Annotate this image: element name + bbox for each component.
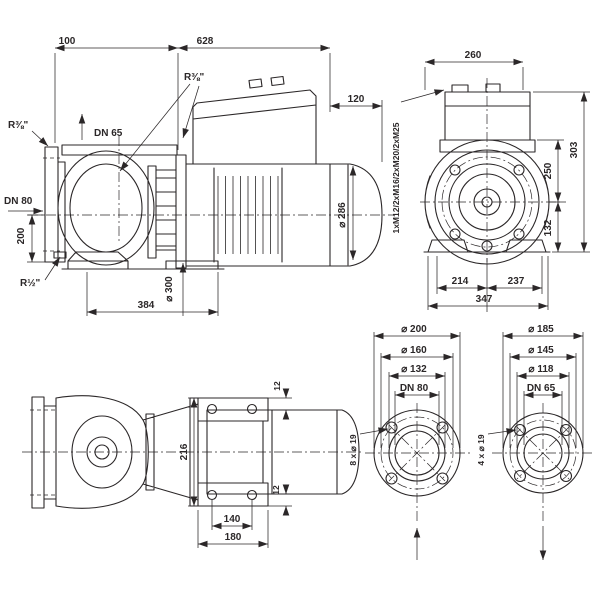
dim-text-dn65-boltcircle: ⌀ 145 xyxy=(528,345,554,356)
suction-label: DN 80 xyxy=(4,196,33,207)
dim-text-250: 250 xyxy=(543,162,554,179)
plan-view: 216 140 180 12 12 xyxy=(22,381,362,548)
dim-text-140: 140 xyxy=(224,514,241,525)
dim-text-dn80-outer: ⌀ 200 xyxy=(401,324,427,335)
leader-dn65-boltholes xyxy=(488,430,516,434)
dim-text-lantern-diameter: ⌀ 300 xyxy=(164,276,175,302)
dim-text-180: 180 xyxy=(225,532,242,543)
leader-gauge-suction xyxy=(32,131,48,146)
dim-text-303: 303 xyxy=(569,141,580,158)
discharge-label: DN 65 xyxy=(94,128,123,139)
leader-drain-port xyxy=(45,257,60,280)
front-view: 260 303 250 132 214 237 347 1xM12/2xM16/… xyxy=(391,50,590,312)
port-label-gauge-suction: R⅜" xyxy=(8,120,29,131)
cable-glands-label: 1xM12/2xM16/2xM20/2xM25 xyxy=(391,122,401,233)
dim-text-dn80-face: ⌀ 132 xyxy=(401,364,427,375)
leader-gauge-port-a xyxy=(120,84,190,171)
dim-text-214: 214 xyxy=(452,276,469,287)
dim-text-237: 237 xyxy=(508,276,525,287)
leader-cable-glands xyxy=(401,90,444,102)
dim-text-260: 260 xyxy=(465,50,482,61)
dim-text-200: 200 xyxy=(16,227,27,244)
dim-text-120: 120 xyxy=(348,94,365,105)
dim-text-628: 628 xyxy=(197,36,214,47)
dim-text-dn65-face: ⌀ 118 xyxy=(529,364,554,375)
dim-text-12-bottom: 12 xyxy=(271,485,281,495)
port-label-drain: R½" xyxy=(20,278,41,289)
dn80-boltholes-label: 8 x ⌀ 19 xyxy=(348,434,358,465)
pump-dimension-drawing: 100 628 120 ⌀ 286 200 384 ⌀ 300 R⅜" R⅜" … xyxy=(0,0,600,600)
technical-drawing-canvas: 100 628 120 ⌀ 286 200 384 ⌀ 300 R⅜" R⅜" … xyxy=(0,0,600,600)
leader-gauge-port-b xyxy=(183,86,199,138)
port-label-gauge: R⅜" xyxy=(184,72,205,83)
side-view: 100 628 120 ⌀ 286 200 384 ⌀ 300 R⅜" R⅜" … xyxy=(4,36,395,316)
dim-text-12-top: 12 xyxy=(272,381,282,391)
side-extension-lines xyxy=(27,53,382,316)
dim-text-motor-diameter: ⌀ 286 xyxy=(337,202,348,228)
dn65-boltholes-label: 4 x ⌀ 19 xyxy=(476,434,486,465)
pump-and-motor-outline xyxy=(45,77,382,270)
flange-dn65-view: ⌀ 185 ⌀ 145 ⌀ 118 DN 65 4 x ⌀ 19 xyxy=(476,324,594,560)
dim-text-132: 132 xyxy=(543,219,554,236)
dim-text-384: 384 xyxy=(138,300,155,311)
dn65-centerlines xyxy=(492,403,594,524)
dim-text-dn65-outer: ⌀ 185 xyxy=(528,324,554,335)
dim-text-dn65-nominal: DN 65 xyxy=(527,383,556,394)
flange-dn80-view: ⌀ 200 ⌀ 160 ⌀ 132 DN 80 8 x ⌀ 19 xyxy=(348,324,470,560)
dim-text-dn80-nominal: DN 80 xyxy=(400,383,429,394)
dim-text-216: 216 xyxy=(179,443,190,460)
dim-text-347: 347 xyxy=(476,294,493,305)
dim-text-100: 100 xyxy=(59,36,76,47)
dim-text-dn80-boltcircle: ⌀ 160 xyxy=(401,345,427,356)
